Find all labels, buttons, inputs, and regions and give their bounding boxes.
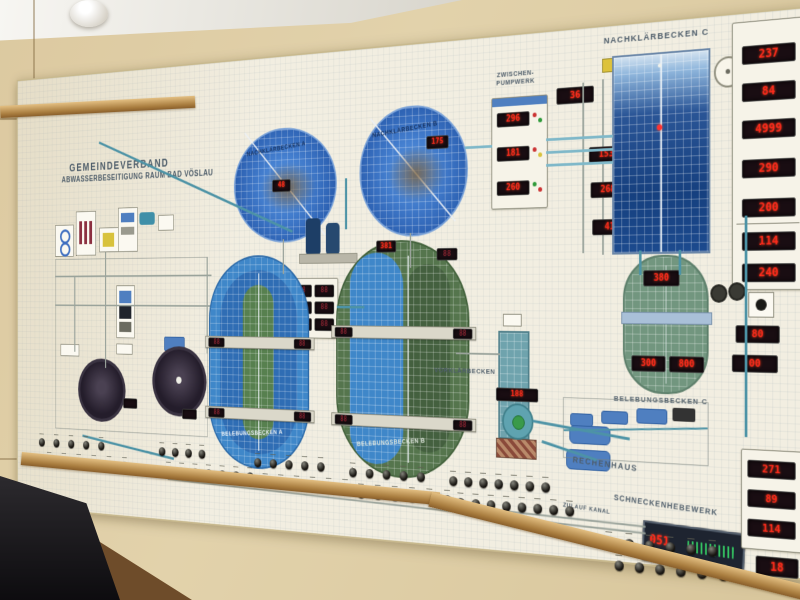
led-display: 88 — [294, 412, 311, 423]
blower-icon — [756, 299, 767, 311]
led-display-small — [182, 409, 197, 420]
led-display: 88 — [294, 339, 311, 349]
led-display: 181 — [497, 146, 530, 162]
control-knob[interactable] — [687, 544, 697, 555]
control-knob[interactable] — [479, 478, 487, 488]
indicator-lamp-red — [533, 147, 537, 152]
basin-divider — [660, 54, 661, 252]
control-knob[interactable] — [159, 447, 166, 456]
control-knob[interactable] — [68, 440, 74, 449]
indicator-lamp-red — [538, 187, 542, 192]
screw-lift-label: SCHNECKENHEBEWERK — [614, 492, 719, 517]
valve-icon — [710, 284, 727, 303]
machine-cell — [121, 227, 134, 235]
led-display: 89 — [747, 489, 795, 510]
digester-2 — [152, 346, 206, 418]
indicator-lamp-green — [538, 118, 542, 123]
conveyor-unit — [673, 408, 696, 422]
tower-box — [116, 285, 134, 338]
clarifier-a-label: NACHKLÄRBECKEN A — [246, 139, 306, 158]
led-display: 80 — [736, 325, 780, 343]
control-knob[interactable] — [98, 442, 104, 451]
control-knob[interactable] — [655, 564, 664, 575]
valve-icon — [728, 282, 745, 301]
panel-header — [492, 95, 547, 107]
control-knob[interactable] — [708, 546, 718, 558]
screen-unit — [636, 408, 667, 424]
digester-center-dot — [176, 377, 181, 384]
heater-bar — [79, 221, 82, 244]
basin-channel-blue — [350, 252, 403, 466]
control-knob[interactable] — [366, 469, 374, 479]
control-knob[interactable] — [510, 480, 519, 491]
pipe — [745, 216, 748, 438]
machine-cell — [121, 213, 134, 223]
led-display: 300 — [631, 355, 665, 372]
teal-equipment-box — [139, 212, 154, 225]
control-knob[interactable] — [254, 458, 261, 468]
control-knob[interactable] — [83, 441, 89, 450]
indicator-lamp-green — [533, 182, 537, 187]
control-knob[interactable] — [349, 468, 357, 478]
grit-chamber — [496, 438, 537, 460]
process-line — [74, 276, 75, 352]
process-line — [582, 83, 583, 254]
led-display: 296 — [497, 111, 530, 128]
control-knob[interactable] — [199, 449, 206, 458]
pump-glyph — [61, 344, 80, 357]
digester-1 — [78, 358, 125, 423]
pipe — [639, 250, 641, 275]
control-knob[interactable] — [417, 472, 425, 482]
basin-divider — [258, 274, 259, 451]
led-display: 271 — [747, 460, 795, 481]
led-display: 240 — [742, 263, 796, 282]
basin-divider — [408, 256, 409, 463]
pump-base — [299, 253, 357, 264]
tower-cell-gray — [119, 322, 131, 332]
small-box — [503, 314, 522, 327]
pipe — [465, 145, 492, 149]
control-knob[interactable] — [518, 502, 527, 513]
control-knob[interactable] — [549, 505, 558, 516]
pump-icon — [512, 415, 524, 430]
pump-station-label: ZWISCHEN-PUMPWERK — [488, 67, 544, 88]
aerator-bridge: 88 88 — [331, 325, 476, 340]
led-display: 84 — [742, 80, 796, 102]
control-knob[interactable] — [285, 460, 292, 470]
sludge-patch — [388, 144, 446, 204]
ceiling — [0, 0, 462, 44]
control-knob[interactable] — [541, 482, 550, 493]
process-line — [410, 233, 411, 268]
pump-sump — [502, 403, 533, 441]
control-knob[interactable] — [39, 438, 45, 447]
gas-holder-box — [55, 225, 74, 257]
led-display-small — [123, 398, 137, 409]
pump-station-panel: 296 181 260 — [491, 94, 547, 209]
control-knob[interactable] — [383, 470, 391, 480]
telemetry-panel-bottom: 271 89 114 — [741, 449, 800, 554]
control-knob[interactable] — [495, 479, 503, 489]
tower-cell-blue — [119, 291, 131, 303]
screen-unit — [601, 411, 628, 425]
clarifier-c-label: NACHKLÄRBECKEN C — [604, 27, 709, 47]
process-line — [105, 252, 106, 368]
pump-tank — [326, 223, 340, 255]
clarifier-b: NACHKLÄRBECKEN B 175 — [360, 102, 468, 238]
indicator-lamp-yellow — [538, 152, 542, 157]
control-knob[interactable] — [526, 481, 535, 492]
pipe — [337, 306, 365, 308]
control-knob[interactable] — [400, 471, 408, 481]
led-display: 36 — [556, 86, 593, 105]
led-display: 114 — [742, 231, 796, 251]
heater-bar — [89, 221, 92, 244]
indicator-lamp-red — [533, 113, 537, 118]
pump-tank — [306, 218, 321, 255]
blower-unit — [748, 292, 774, 318]
led-display: 88 — [314, 285, 334, 298]
led-display: 88 — [453, 329, 472, 340]
led-display: 800 — [669, 356, 704, 373]
control-knob[interactable] — [53, 439, 59, 448]
aeration-basin-c: 380 300 800 — [623, 254, 709, 395]
led-display-clarifier-a: 48 — [272, 179, 290, 192]
building-box — [99, 227, 118, 252]
control-knob[interactable] — [635, 562, 644, 573]
led-display: 290 — [742, 158, 796, 179]
machine-house-box — [118, 207, 138, 252]
heater-bar — [84, 221, 87, 244]
led-display: 88 — [335, 414, 353, 425]
small-box — [158, 215, 173, 231]
aerator-bridge — [621, 312, 712, 325]
gas-holder-icon — [60, 242, 70, 257]
led-display: 88 — [453, 419, 472, 431]
control-knob[interactable] — [270, 459, 277, 469]
control-knob[interactable] — [533, 503, 542, 514]
led-display: 00 — [732, 354, 778, 373]
control-knob[interactable] — [301, 461, 308, 471]
led-display: 200 — [742, 197, 796, 217]
screen-unit — [570, 413, 593, 427]
control-knob[interactable] — [449, 476, 457, 486]
aeration-basin-b: 381 88 88 88 88 88 BELEBUNGSBECKEN B — [336, 239, 469, 483]
control-knob[interactable] — [615, 560, 624, 571]
intermediate-pump-structure — [299, 217, 356, 262]
led-display-clarifier-b: 175 — [426, 135, 448, 149]
led-display: 114 — [747, 518, 795, 540]
control-knob[interactable] — [185, 449, 192, 458]
smoke-detector — [70, 0, 108, 27]
telemetry-panel-top: 237 84 4999 290 200 114 240 — [732, 16, 800, 290]
meter-needle-hub — [726, 69, 731, 74]
led-display: 237 — [742, 42, 796, 65]
aeration-basin-a: 88 88 88 88 BELEBUNGSBECKEN A — [209, 255, 309, 473]
tower-cell-dark — [119, 306, 131, 319]
pump-glyph — [116, 344, 132, 355]
led-display: 260 — [497, 180, 530, 196]
led-display: 4999 — [742, 118, 796, 140]
clarifier-c — [612, 48, 710, 255]
led-display: 88 — [209, 338, 225, 348]
pipe — [679, 250, 681, 275]
control-knob[interactable] — [464, 477, 472, 487]
control-knob[interactable] — [172, 448, 179, 457]
heater-box — [76, 211, 96, 256]
led-display: 88 — [335, 327, 353, 337]
aerator-bridge: 88 88 — [206, 336, 315, 350]
process-line — [283, 239, 284, 274]
led-display: 188 — [496, 387, 538, 402]
control-knob[interactable] — [317, 462, 324, 472]
led-display: 88 — [314, 301, 334, 314]
led-display: 88 — [437, 248, 458, 261]
led-display: 380 — [643, 270, 679, 286]
led-display: 381 — [376, 240, 396, 252]
building-icon — [103, 233, 114, 247]
pipe — [345, 178, 347, 229]
control-knob[interactable] — [565, 506, 574, 517]
led-display: 88 — [209, 408, 225, 418]
